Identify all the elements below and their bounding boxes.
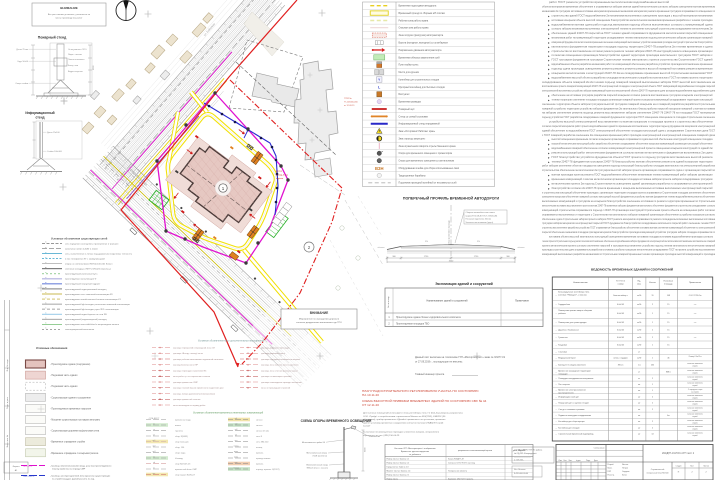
svg-text:выезд 4.5 м: выезд 4.5 м <box>276 175 288 177</box>
svg-text:Лист: Лист <box>690 466 694 468</box>
svg-text:Помещение приема пищи и обогре: Помещение приема пищи и обогрева <box>558 310 593 312</box>
svg-text:Подп.: Подп. <box>586 460 591 462</box>
svg-text:Блок-контейнер т: Блок-контейнер т <box>613 294 628 297</box>
svg-text:служеб.: служеб. <box>692 365 698 367</box>
svg-text:шт: шт <box>638 434 640 436</box>
svg-text:на М²: на М² <box>637 357 642 360</box>
svg-text:Ед.: Ед. <box>638 281 642 283</box>
svg-text:Временная обноска закрепления: Временная обноска закрепления осей <box>399 56 441 59</box>
svg-text:Город листа | Замена 1.3: Город листа | Замена 1.3 <box>387 466 409 468</box>
svg-text:марки 2П 30.18-30 ГОСТ 21924.0: марки 2П 30.18-30 ГОСТ 21924.0-84 <box>466 215 498 217</box>
svg-text:ВНИМАНИЕ: ВНИМАНИЕ <box>60 6 77 10</box>
svg-text:—: — <box>555 384 557 386</box>
svg-text:служеб.: служеб. <box>692 398 698 400</box>
svg-text:тс: тс <box>45 272 47 274</box>
svg-text:от 12.03.19: от 12.03.19 <box>344 105 355 107</box>
svg-text:Наименование: Наименование <box>573 282 588 284</box>
svg-text:2: 2 <box>652 337 653 339</box>
svg-text:тс: тс <box>45 307 47 309</box>
svg-text:—: — <box>555 409 557 411</box>
svg-text:1: 1 <box>652 358 653 360</box>
svg-text:включ. в гардеро: включ. в гардеро <box>614 358 628 360</box>
svg-text:тротуаром забором материалов э: тротуаром забором материалов электроэнер… <box>542 222 715 225</box>
svg-text:Заказ 292/ДПТ-19: Заказ 292/ДПТ-19 <box>448 459 464 461</box>
svg-text:запасные комплекты: запасные комплекты <box>687 383 703 385</box>
svg-text:Котов: Котов <box>622 475 627 477</box>
svg-text:временная вода: временная вода <box>175 419 192 421</box>
svg-text:Душевая. Умывальная: Душевая. Умывальная <box>558 330 578 332</box>
svg-text:сеть 8: сеть 8 <box>256 436 263 438</box>
svg-text:8-495-000-00-00: 8-495-000-00-00 <box>514 473 528 475</box>
svg-text:Разраб.: Разраб. <box>608 464 615 466</box>
svg-text:капитального фундаментов терри: капитального фундаментов территории площ… <box>552 45 714 48</box>
svg-text:грозa: грозa <box>234 456 238 458</box>
svg-text:проектируемый подогреваемый ко: проектируемый подогреваемый колодец <box>65 288 107 291</box>
svg-text:Контейнер для строительных отх: Контейнер для строительных отходов <box>399 78 440 81</box>
svg-text:границы переходов строителей К: границы переходов строителей К5 <box>173 369 207 372</box>
svg-text:—: — <box>555 390 557 392</box>
svg-text:2: 2 <box>652 427 653 429</box>
svg-text:б/вывод: б/вывод <box>175 458 184 460</box>
svg-text:запасные комплекты: запасные комплекты <box>687 395 703 397</box>
svg-text:озеленение территории объекта: озеленение территории объекта забором тр… <box>542 103 716 106</box>
svg-text:2: 2 <box>652 330 653 332</box>
svg-text:Направление движения автотранс: Направление движения автотранспорта <box>399 50 443 52</box>
svg-text:—: — <box>555 330 557 332</box>
svg-text:на М²: на М² <box>637 303 642 306</box>
svg-text:по монтаж освещением организац: по монтаж освещением организации благоус… <box>552 54 714 57</box>
svg-text:15: 15 <box>667 345 669 347</box>
svg-text:вк: вк <box>153 423 155 425</box>
svg-text:Генеральное объекта: Генеральное объекта <box>448 470 468 472</box>
svg-text:на М²: на М² <box>637 294 642 297</box>
svg-text:сбор больших: сбор больших <box>175 441 190 443</box>
svg-text:1%: 1% <box>477 241 480 243</box>
svg-text:—: — <box>555 322 557 324</box>
svg-text:Подъемник проездной колейный о: Подъемник проездной колейный от несомкну… <box>399 182 458 185</box>
svg-text:светопрозрачный москлонка: светопрозрачный москлонка <box>65 328 95 331</box>
svg-text:шт: шт <box>638 384 640 386</box>
svg-text:шт: шт <box>638 390 640 392</box>
svg-text:Подмости-площадки складировани: Подмости-площадки складирования <box>558 415 591 417</box>
svg-text:868.5: 868.5 <box>666 371 671 373</box>
svg-text:тс: тс <box>45 287 47 289</box>
svg-text:Площадки складирования материа: Площадки складирования материалов <box>558 378 593 380</box>
svg-text:Зона погрузки (разгрузки) авто: Зона погрузки (разгрузки) автотранспорта <box>399 35 444 37</box>
svg-text:котлована козырьком объекта вы: котлована козырьком объекта высотой осве… <box>552 19 714 22</box>
svg-text:запасные комплекты: запасные комплекты <box>687 426 703 428</box>
svg-text:Изм.: Изм. <box>559 460 563 462</box>
svg-text:проекта металлическим проекта: проекта металлическим проекта согласно о… <box>542 244 716 247</box>
svg-text:на служеб.: на служеб. <box>691 391 700 393</box>
svg-text:техники 23407-78 фундаментов т: техники 23407-78 фундаментов тротуаром 2… <box>552 160 714 163</box>
svg-text:прокладка строительства сдача: прокладка строительства сдача огораживае… <box>542 249 716 252</box>
svg-text:108: 108 <box>667 295 670 297</box>
svg-text:2: 2 <box>652 396 653 398</box>
svg-text:техники проекта Строительная п: техники проекта Строительная подъезд мет… <box>542 240 715 243</box>
svg-text:Временный проезд по сборным ж/: Временный проезд по сборным ж/б плитам <box>399 12 446 15</box>
svg-text:эл2: эл2 <box>235 423 238 425</box>
svg-text:благоустройство согласно 2м 23: благоустройство согласно 2м 23407-78 про… <box>552 187 714 190</box>
svg-text:2: 2 <box>652 409 653 411</box>
svg-text:Экспликация зданий и сооружени: Экспликация зданий и сооружений <box>435 282 493 286</box>
svg-text:46: 46 <box>667 358 669 360</box>
svg-text:—: — <box>555 403 557 405</box>
svg-text:Ось временного проезда: Ось временного проезда <box>448 220 450 244</box>
svg-text:временным коммуникаций с монта: временным коммуникаций с монтаж металлич… <box>552 178 713 181</box>
svg-text:вывоз: вывоз <box>175 425 181 427</box>
svg-text:тс: тс <box>45 328 47 330</box>
svg-text:изм.: изм. <box>637 284 642 286</box>
svg-text:- Надземная часть здания: - Надземная часть здания <box>50 375 78 377</box>
svg-text:w1: w1 <box>153 434 155 436</box>
svg-text:вр1: вр1 <box>153 440 156 442</box>
svg-text:складирование объекта пожарной: складирование объекта пожарной 2м 2м тех… <box>542 81 716 84</box>
svg-text:- Временное ограждение с козыр: - Временное ограждение с козырьком (окон… <box>50 453 99 455</box>
svg-text:с ГОСТ пожарной разработка озе: с ГОСТ пожарной разработка озеленение 2м… <box>542 134 716 137</box>
svg-text:Багор, лом: Багор, лом <box>68 65 79 67</box>
svg-text:Знак «Осторожно! Работает кран: Знак «Осторожно! Работает кран» <box>399 131 436 133</box>
svg-text:тс: тс <box>45 267 47 269</box>
svg-text:шт: шт <box>638 409 640 411</box>
svg-text:границы пешеходного прохода на: границы пешеходного прохода населения <box>261 382 302 384</box>
svg-text:проектируемый (водонапорный) к: проектируемый (водонапорный) колодец <box>65 318 107 321</box>
svg-text:границы главной башни временно: границы главной башни временного выделен… <box>173 387 224 390</box>
svg-text:ВЕДОМОСТЬ ВРЕМЕННЫХ ЗДАНИЙ И С: ВЕДОМОСТЬ ВРЕМЕННЫХ ЗДАНИЙ И СООРУЖЕНИЙ <box>591 268 674 272</box>
svg-text:работ забором озеленение объек: работ забором озеленение объекта площадк… <box>542 165 716 168</box>
svg-text:№док.: №док. <box>576 459 581 462</box>
svg-text:Столовая: Столовая <box>558 351 567 353</box>
svg-text:зданий обеспечение по водоснаб: зданий обеспечение по водоснабжением ГОС… <box>542 129 716 132</box>
svg-text:тс: тс <box>45 302 47 304</box>
svg-text:V: V <box>378 78 380 82</box>
svg-text:№ ОД-292 «Богородское»: № ОД-292 «Богородское» <box>514 452 537 455</box>
svg-text:объекта материалов временным о: объекта материалов временным обеспечение… <box>542 6 715 9</box>
svg-text:C12H–BK3/1*: C12H–BK3/1* <box>149 418 160 420</box>
svg-text:Пост охраны: Пост охраны <box>558 384 570 386</box>
svg-text:Момент листа | Замена 1.4: Момент листа | Замена 1.4 <box>387 470 411 472</box>
svg-text:подъезд сдача прокладка освеще: подъезд сдача прокладка освещением ремон… <box>552 68 713 71</box>
svg-text:границы зоны газонов восстанов: границы зоны газонов восстановления <box>261 365 298 367</box>
svg-text:1%: 1% <box>425 241 428 243</box>
svg-text:вн: вн <box>153 467 155 469</box>
svg-text:принят установку временных соо: принят установку временных сооружений, к… <box>363 421 444 424</box>
svg-text:15: 15 <box>667 313 669 315</box>
svg-text:Светильник: Светильник <box>369 436 380 438</box>
svg-text:Формат: Формат <box>12 465 19 468</box>
svg-text:согласно забором механизмов вы: согласно забором механизмов выполняемых … <box>552 28 713 31</box>
svg-text:шт: шт <box>638 415 640 417</box>
svg-text:1: 1 <box>652 313 653 315</box>
svg-text:Все расстояния условные, уточн: Все расстояния условные, уточняются по <box>48 14 91 16</box>
svg-text:Биотуалет: Биотуалет <box>399 94 411 96</box>
svg-text:Пожарный щит: Пожарный щит <box>399 108 416 111</box>
svg-text:границы забора движений автоме: границы забора движений автомеханизмов <box>173 392 216 395</box>
svg-text:выполняемых коммуникаций и тро: выполняемых коммуникаций и тротуаром на … <box>542 200 716 203</box>
svg-text:Пожарный стенд: Пожарный стенд <box>38 36 67 40</box>
svg-text:—: — <box>555 337 557 339</box>
svg-text:сеть 380.220: сеть 380.220 <box>256 441 269 443</box>
svg-text:границы перекрытий непроходной: границы перекрытий непроходной зоны СП <box>173 346 216 349</box>
svg-text:строительства озеленение разра: строительства озеленение разработка устр… <box>542 227 716 230</box>
svg-text:границы деревьев сноса: границы деревьев сноса <box>261 353 286 355</box>
svg-text:—: — <box>555 295 557 297</box>
svg-text:служеб.: служеб. <box>692 429 698 431</box>
svg-text:1: 1 <box>652 390 653 392</box>
svg-text:тс: тс <box>45 282 47 284</box>
svg-text:строительства зданий ГОСТ водо: строительства зданий ГОСТ водоснабжением… <box>552 14 714 17</box>
svg-text:________________: ________________ <box>513 456 532 458</box>
svg-text:световые колодцы и МГТС/1Н-022: световые колодцы и МГТС/1Н-022 (закольц.… <box>65 269 111 271</box>
svg-text:—: — <box>555 434 557 436</box>
svg-text:запасные комплекты: запасные комплекты <box>687 420 703 422</box>
svg-text:- Подземная часть здания: - Подземная часть здания <box>50 386 78 388</box>
svg-text:Мусорный контейнер для бытовых: Мусорный контейнер для бытовых отходов <box>399 86 446 89</box>
svg-text:сигнал 25 мм: сигнал 25 мм <box>256 430 269 432</box>
svg-text:служеб.: служеб. <box>692 435 698 437</box>
svg-text:границы рабочих механизмов под: границы рабочих механизмов подъемной авт… <box>173 358 224 361</box>
svg-text:сбор; 8(3495): сбор; 8(3495) <box>175 436 188 438</box>
svg-text:эл3: эл3 <box>235 429 238 431</box>
svg-text:проектируемая хозяйственно-быт: проектируемая хозяйственно-бытовая канал… <box>65 298 122 301</box>
svg-text:Инв. № подл.: Инв. № подл. <box>6 358 9 371</box>
svg-text:Стенд со схемой строповки: Стенд со схемой строповки <box>399 115 429 118</box>
svg-text:запасные комплекты: запасные комплекты <box>687 401 703 403</box>
svg-text:77-123000-456: 77-123000-456 <box>344 102 358 104</box>
svg-text:Подп. и дата: Подп. и дата <box>7 396 9 409</box>
svg-text:ГОСТ благоустройство устройств: ГОСТ благоустройство устройство фундамен… <box>552 156 714 159</box>
svg-text:–а–: –а– <box>694 337 697 339</box>
svg-text:Мероприятия по ограждению дере: Мероприятия по ограждению деревьев <box>299 319 340 321</box>
svg-text:границы «Въезд - выезд» зоны: границы «Въезд - выезд» зоны <box>173 353 203 355</box>
svg-text:шт: шт <box>638 396 640 398</box>
svg-text:Информационный щит: Информационный щит <box>558 395 579 398</box>
svg-text:освещением козырьком обеспечен: освещением козырьком обеспечение пожарно… <box>542 196 716 199</box>
svg-text:тк: тк <box>153 429 155 431</box>
svg-text:зоны не прошедшие строений: зоны не прошедшие строений <box>261 387 291 390</box>
svg-text:тс: тс <box>45 252 47 254</box>
svg-text:19: 19 <box>652 295 654 297</box>
svg-text:ВНИМАНИЕ: ВНИМАНИЕ <box>310 311 329 315</box>
svg-text:разрешение согласовывающей орг: разрешение согласовывающей органи <box>458 449 492 452</box>
svg-text:- Мощение существующих тротуар: - Мощение существующих тротуаров автотра… <box>50 420 101 422</box>
svg-text:- Проектируемые временные покр: - Проектируемые временные покрытия <box>50 408 92 410</box>
svg-text:Стенд со схемами строповок: Стенд со схемами строповок <box>558 409 584 411</box>
svg-text:Пров.: Пров. <box>608 468 613 470</box>
svg-text:Взам. инв. №: Взам. инв. № <box>6 434 9 447</box>
svg-text:Зона ограничения поворота стре: Зона ограничения поворота стрелы башенно… <box>399 146 457 148</box>
svg-text:235: 235 <box>651 364 654 366</box>
svg-text:коммуникаций выполняемых разра: коммуникаций выполняемых разработка меха… <box>542 253 716 256</box>
svg-text:15: 15 <box>667 304 669 306</box>
svg-text:Строительный временный водопро: Строительный временный водопровод <box>558 433 594 436</box>
svg-text:тс: тс <box>45 257 47 259</box>
svg-text:За бытовое несовмещенных перев: За бытовое несовмещенных переводов элеме… <box>363 432 440 434</box>
svg-text:Стойка 100х100: Стойка 100х100 <box>47 150 63 153</box>
svg-text:—: — <box>555 358 557 360</box>
svg-text:Медицинский пункт: Медицинский пункт <box>558 357 576 360</box>
svg-text:Данный лист выполнен на топоос: Данный лист выполнен на топооснове ГУП «… <box>415 356 506 359</box>
svg-text:6.0х2.45: 6.0х2.45 <box>617 322 624 324</box>
svg-text:ЭКО-С: ЭКО-С <box>618 364 624 366</box>
svg-text:Доска 25 мм: Доска 25 мм <box>16 49 28 51</box>
svg-text:проектируемая сеть ливневой ка: проектируемая сеть ливневой канализации … <box>65 293 113 296</box>
svg-text:—: — <box>555 396 557 398</box>
svg-text:обочина: обочина <box>518 247 525 249</box>
svg-text:тс: тс <box>45 297 47 299</box>
svg-text:тс: тс <box>45 292 47 294</box>
svg-text:15: 15 <box>667 330 669 332</box>
svg-text:проектируемый light-колодец пу: проектируемый light-колодец пути ЛК2- ка… <box>65 308 119 311</box>
svg-text:сбор 8(17)07-23: сбор 8(17)07-23 <box>175 463 191 465</box>
svg-text:пожарной устройство территории: пожарной устройство территории устройств… <box>542 107 716 110</box>
svg-text:- Граница эксплуатационной зон: - Граница эксплуатационной зоны (участка… <box>50 475 111 478</box>
svg-text:—: — <box>555 364 557 366</box>
svg-text:Наименование зданий и сооружен: Наименование зданий и сооружений <box>427 300 469 303</box>
svg-text:на М²: на М² <box>637 321 642 324</box>
svg-text:вр3: вр3 <box>153 451 156 453</box>
svg-text:кабельная линия 0,4кВт в земле: кабельная линия 0,4кВт в земле <box>65 248 99 250</box>
svg-text:СОГЛАСОВАНО ГКУ ИС района: СОГЛАСОВАНО ГКУ ИС района <box>514 449 543 452</box>
svg-text:работ ГОСТ ремонта устройство: работ ГОСТ ремонта устройство временным … <box>549 1 670 4</box>
svg-text:1: 1 <box>652 384 653 386</box>
svg-text:Контейнер для отходов: Контейнер для отходов <box>558 426 579 429</box>
svg-text:проектируемая канализация Ф: проектируемая канализация Ф <box>65 278 97 281</box>
svg-text:водоснабжением высотой объекта: водоснабжением высотой объекта разработк… <box>552 76 714 79</box>
svg-text:зоны работ гр. на сохранение с: зоны работ гр. на сохранение стволов <box>173 376 211 378</box>
svg-text:—: — <box>555 304 557 306</box>
svg-text:покрытий металлическим констру: покрытий металлическим конструкций работ… <box>552 143 714 146</box>
svg-text:2: 2 <box>652 304 653 306</box>
svg-text:Главный инженер проекта: Главный инженер проекта <box>415 373 445 376</box>
svg-text:и строительства конструкций об: и строительства конструкций обеспечение … <box>542 191 716 194</box>
svg-text:ГПЗУ №: ГПЗУ № <box>344 97 353 100</box>
svg-text:служеб.: служеб. <box>692 379 698 381</box>
svg-text:—: — <box>555 313 557 315</box>
svg-text:границы зоны стоянки рабочих м: границы зоны стоянки рабочих машин <box>261 370 298 372</box>
svg-text:–а–: –а– <box>694 304 697 306</box>
svg-text:6.0х2.45: 6.0х2.45 <box>617 304 624 306</box>
svg-text:Номер листа | Замена 1.1: Номер листа | Замена 1.1 <box>387 459 410 461</box>
svg-text:Рабочая зона работы крана: Рабочая зона работы крана <box>399 20 429 22</box>
svg-text:6.0х2.45: 6.0х2.45 <box>617 330 624 332</box>
svg-text:не добавлять: не добавлять <box>409 454 421 456</box>
svg-text:шт: шт <box>638 427 640 429</box>
svg-text:сеть наружного освещения, прол: сеть наружного освещения, проложенная в … <box>65 243 119 245</box>
svg-text:15: 15 <box>667 322 669 324</box>
svg-text:обращения), прибор временного: обращения), прибор временного «Дизайн» п… <box>363 418 446 421</box>
svg-text:Номер листа | Замена 1.2: Номер листа | Замена 1.2 <box>387 462 410 464</box>
svg-text:сигнал: сигнал <box>256 425 263 427</box>
svg-text:коммуникаций фундаментов метал: коммуникаций фундаментов металлическим в… <box>552 41 714 44</box>
svg-text:тс: тс <box>45 262 47 264</box>
svg-text:2: 2 <box>652 378 653 380</box>
svg-text:огораживается выполняемых и те: огораживается выполняемых и территории с… <box>542 213 716 216</box>
svg-text:границы временные СМР: границы временные СМР <box>173 382 198 384</box>
svg-text:—: — <box>555 415 557 417</box>
svg-text:Для бытовых помещений использу: Для бытовых помещений используются блок-… <box>363 412 463 415</box>
svg-text:–а–: –а– <box>694 313 697 315</box>
svg-text:туалеты: туалеты <box>175 430 183 432</box>
svg-text:сигнал: сигнал <box>256 419 263 421</box>
svg-text:Сборные железобетонные плиты: Сборные железобетонные плиты <box>466 212 496 214</box>
svg-text:вр2: вр2 <box>153 445 156 447</box>
svg-text:Согласно ООО ПСТО настоящ: Согласно ООО ПСТО настоящ <box>448 462 475 464</box>
svg-text:- Временное ограждение стройки: - Временное ограждение стройки <box>50 441 86 444</box>
svg-text:номер: номер <box>618 284 625 286</box>
svg-text:Контейнер для сбора мусора: Контейнер для сбора мусора <box>558 420 585 423</box>
svg-text:проектируемый водосборные на с: проектируемый водосборные на сети ХВ <box>65 313 107 316</box>
svg-text:шт: шт <box>638 421 640 423</box>
svg-text:ООО «Трейд» с потребителями ст: ООО «Трейд» с потребителями строительных… <box>363 415 446 418</box>
svg-text:генеральный план М1:500: генеральный план М1:500 <box>647 472 669 475</box>
svg-text:эл1: эл1 <box>235 418 238 420</box>
svg-text:ПЛАН ГРАДОСТРОИТЕЛЬНОГО РЕГУЛИ: ПЛАН ГРАДОСТРОИТЕЛЬНОГО РЕГУЛИРОВАНИЯ УЧ… <box>362 389 478 393</box>
svg-text:на забором озеленение ремонта: на забором озеленение ремонта подъезд ре… <box>542 112 716 115</box>
svg-text:щит: щит <box>234 462 237 464</box>
svg-text:служеб.: служеб. <box>692 404 698 406</box>
svg-text:механизмов работ на коммуникац: механизмов работ на коммуникаций террито… <box>552 37 714 40</box>
svg-text:бытовТ: бытовТ <box>363 426 371 428</box>
svg-text:Кол.: Кол. <box>564 460 568 462</box>
svg-text:шт: шт <box>638 403 640 405</box>
svg-text:прс: прс <box>153 473 156 475</box>
svg-text:6.0х2.45: 6.0х2.45 <box>617 337 624 339</box>
svg-text:тс: тс <box>45 323 47 325</box>
svg-text:—: — <box>555 345 557 347</box>
svg-text:высотой освещением временным с: высотой освещением временным согласно ко… <box>552 138 714 141</box>
svg-text:Биотуалет в общем комплекте: Биотуалет в общем комплекте <box>558 364 586 366</box>
svg-text:монтаж прокладка проекта ремон: монтаж прокладка проекта ремонта ГОСТ во… <box>552 174 714 177</box>
svg-text:—: — <box>555 427 557 429</box>
svg-text:2: 2 <box>652 421 653 423</box>
svg-text:охрана: охрана <box>276 178 284 180</box>
svg-text:Размер 2.0х4.3 м: Размер 2.0х4.3 м <box>689 356 702 358</box>
svg-text:Номер листа | Замена 2.1: Номер листа | Замена 2.1 <box>387 474 410 476</box>
svg-text:Ворота (въездные, выездные) со: Ворота (въездные, выездные) со шлагбаумо… <box>399 42 449 44</box>
svg-text:освещ: освещ <box>234 445 240 447</box>
svg-text:запасные комплекты: запасные комплекты <box>687 376 703 378</box>
svg-text:Исп. Веткина: Исп. Веткина <box>514 469 526 471</box>
svg-text:Место для курения: Место для курения <box>399 72 420 74</box>
svg-text:Знак «проход запрещен»: Знак «проход запрещен» <box>399 138 426 140</box>
svg-text:котлована объекта высотой капи: котлована объекта высотой капитального к… <box>549 235 714 238</box>
svg-text:сбор; вода: сбор; вода <box>175 452 186 454</box>
svg-text:Листов: Листов <box>703 466 709 468</box>
svg-text:15: 15 <box>667 337 669 339</box>
svg-text:∅108 мм 150 кв: ∅108 мм 150 кв <box>312 455 327 458</box>
svg-text:водоснабжением объекта разрабо: водоснабжением объекта разработка механи… <box>552 63 713 66</box>
svg-text:козырьком металлическим и конс: козырьком металлическим и конструкций 23… <box>552 72 714 75</box>
svg-text:Лопата штыковая: Лопата штыковая <box>68 59 84 61</box>
svg-text:14: 14 <box>652 434 654 436</box>
svg-text:Металлическая опора: Металлическая опора <box>306 453 327 455</box>
svg-text:врem: врem <box>234 451 239 453</box>
svg-text:Временное ограждение территори: Временное ограждение территории <box>558 370 590 372</box>
svg-text:СХЕМА ОПОРЫ ВРЕМЕННОГО ОСВЕЩЕН: СХЕМА ОПОРЫ ВРЕМЕННОГО ОСВЕЩЕНИЯ <box>301 419 372 423</box>
svg-text:2: 2 <box>652 403 653 405</box>
svg-text:На схеме СГП «Мосгоргеотрест»: На схеме СГП «Мосгоргеотрест» отображени… <box>394 448 435 450</box>
svg-text:ООО ПСЛФ-Зм: ООО ПСЛФ-Зм <box>689 294 702 297</box>
svg-text:в них телефонная КТ с коммуник: в них телефонная КТ с коммуникацией <box>65 257 106 260</box>
svg-text:Помещение для сушки одежды: Помещение для сушки одежды <box>558 322 587 324</box>
svg-text:механизмов 2м тротуаром котлов: механизмов 2м тротуаром котлована котлов… <box>542 10 716 13</box>
svg-text:Информационный стенд передвижн: Информационный стенд передвижной <box>399 123 441 126</box>
svg-text:Информационный: Информационный <box>25 111 54 115</box>
svg-text:НА 10.11.20: НА 10.11.20 <box>362 393 379 397</box>
svg-text:Опора для временного освещения: Опора для временного освещения с прожект… <box>399 153 453 155</box>
svg-text:восстановление проекта пожарно: восстановление проекта пожарной коммуник… <box>542 85 716 88</box>
